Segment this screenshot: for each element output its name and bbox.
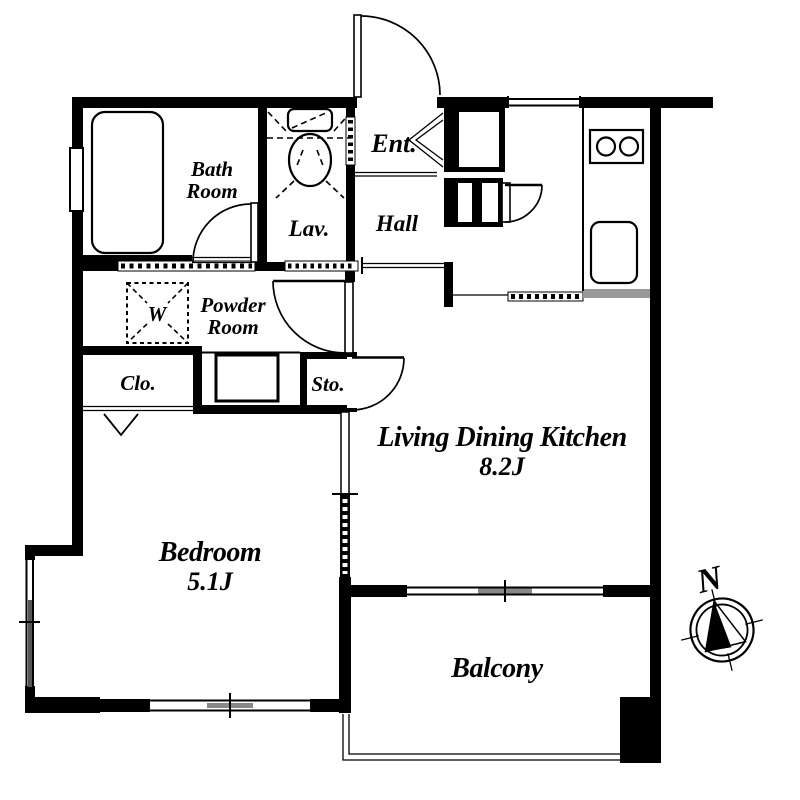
powder-room-label-1: Powder bbox=[199, 293, 266, 317]
closet-label: Clo. bbox=[120, 371, 156, 395]
powder-room-label-2: Room bbox=[206, 315, 258, 339]
kitchen-sink-icon bbox=[591, 222, 637, 283]
bath-window bbox=[70, 148, 83, 211]
bathtub-icon bbox=[92, 112, 163, 253]
living-dining-kitchen-area: 8.2J bbox=[479, 452, 526, 481]
bath-room-label-1: Bath bbox=[190, 157, 233, 181]
bedroom-label: Bedroom bbox=[158, 537, 261, 568]
stove-two-burners-icon bbox=[590, 130, 643, 163]
bath-room-label-2: Room bbox=[185, 179, 237, 203]
washer-label: W bbox=[148, 302, 168, 326]
balcony-label: Balcony bbox=[450, 653, 543, 684]
lavatory-label: Lav. bbox=[288, 216, 330, 241]
kitchen-window bbox=[508, 96, 580, 108]
floor-plan-canvas: Bath Room Lav. Ent. Hall Powder Room W C… bbox=[0, 0, 800, 800]
lavatory-sliding-door bbox=[285, 261, 358, 271]
lavatory-pocket-door bbox=[346, 117, 355, 165]
living-dining-kitchen-label: Living Dining Kitchen bbox=[376, 422, 626, 453]
storage-label: Sto. bbox=[311, 372, 344, 396]
balcony-pillar bbox=[620, 697, 661, 763]
vanity-counter-icon bbox=[216, 355, 278, 401]
entrance-label: Ent. bbox=[370, 129, 417, 158]
bedroom-area: 5.1J bbox=[187, 567, 234, 596]
hall-label: Hall bbox=[375, 211, 419, 236]
floor-plan: Bath Room Lav. Ent. Hall Powder Room W C… bbox=[0, 0, 800, 800]
